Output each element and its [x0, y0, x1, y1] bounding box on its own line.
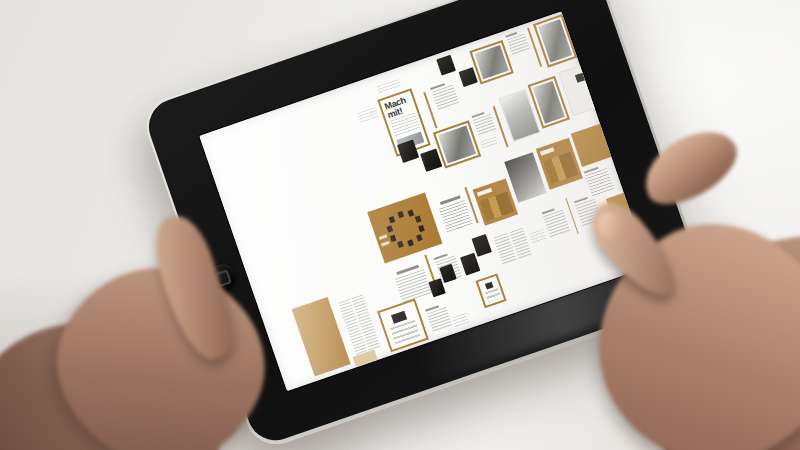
page-thumbnail-text[interactable]	[541, 205, 570, 237]
page-thumbnail-illustration[interactable]	[367, 192, 443, 263]
page-thumbnail-orange[interactable]	[571, 124, 611, 167]
page-thumbnail-photo-dark[interactable]	[436, 55, 456, 75]
page-thumbnail-caption	[452, 312, 470, 327]
page-thumbnail-text[interactable]	[584, 164, 615, 197]
tablet-screen[interactable]: Mach mit!	[199, 11, 649, 391]
right-thumb-nail	[592, 207, 630, 245]
page-thumbnail-text-cols[interactable]	[492, 225, 532, 266]
page-thumbnail-caption	[481, 137, 498, 150]
page-thumbnail-framed-page[interactable]	[377, 299, 429, 353]
table-people-illustration	[402, 224, 409, 231]
page-thumbnail-caption	[377, 79, 401, 94]
page-thumbnail-photo-framed[interactable]	[533, 14, 577, 67]
page-thumbnail-framed-page[interactable]	[476, 273, 507, 309]
page-thumbnail-caption	[357, 107, 379, 123]
page-thumbnail-text[interactable]	[425, 303, 453, 333]
page-thumbnail-text-heading[interactable]	[392, 262, 432, 303]
flatplan-canvas: Mach mit!	[199, 11, 649, 391]
photo-scene: Mach mit!	[0, 0, 800, 450]
page-thumbnail-text[interactable]	[505, 30, 530, 57]
page-thumbnail-text[interactable]	[472, 110, 497, 137]
page-thumbnail-caption	[529, 229, 547, 244]
page-thumbnail-text[interactable]	[430, 80, 460, 110]
